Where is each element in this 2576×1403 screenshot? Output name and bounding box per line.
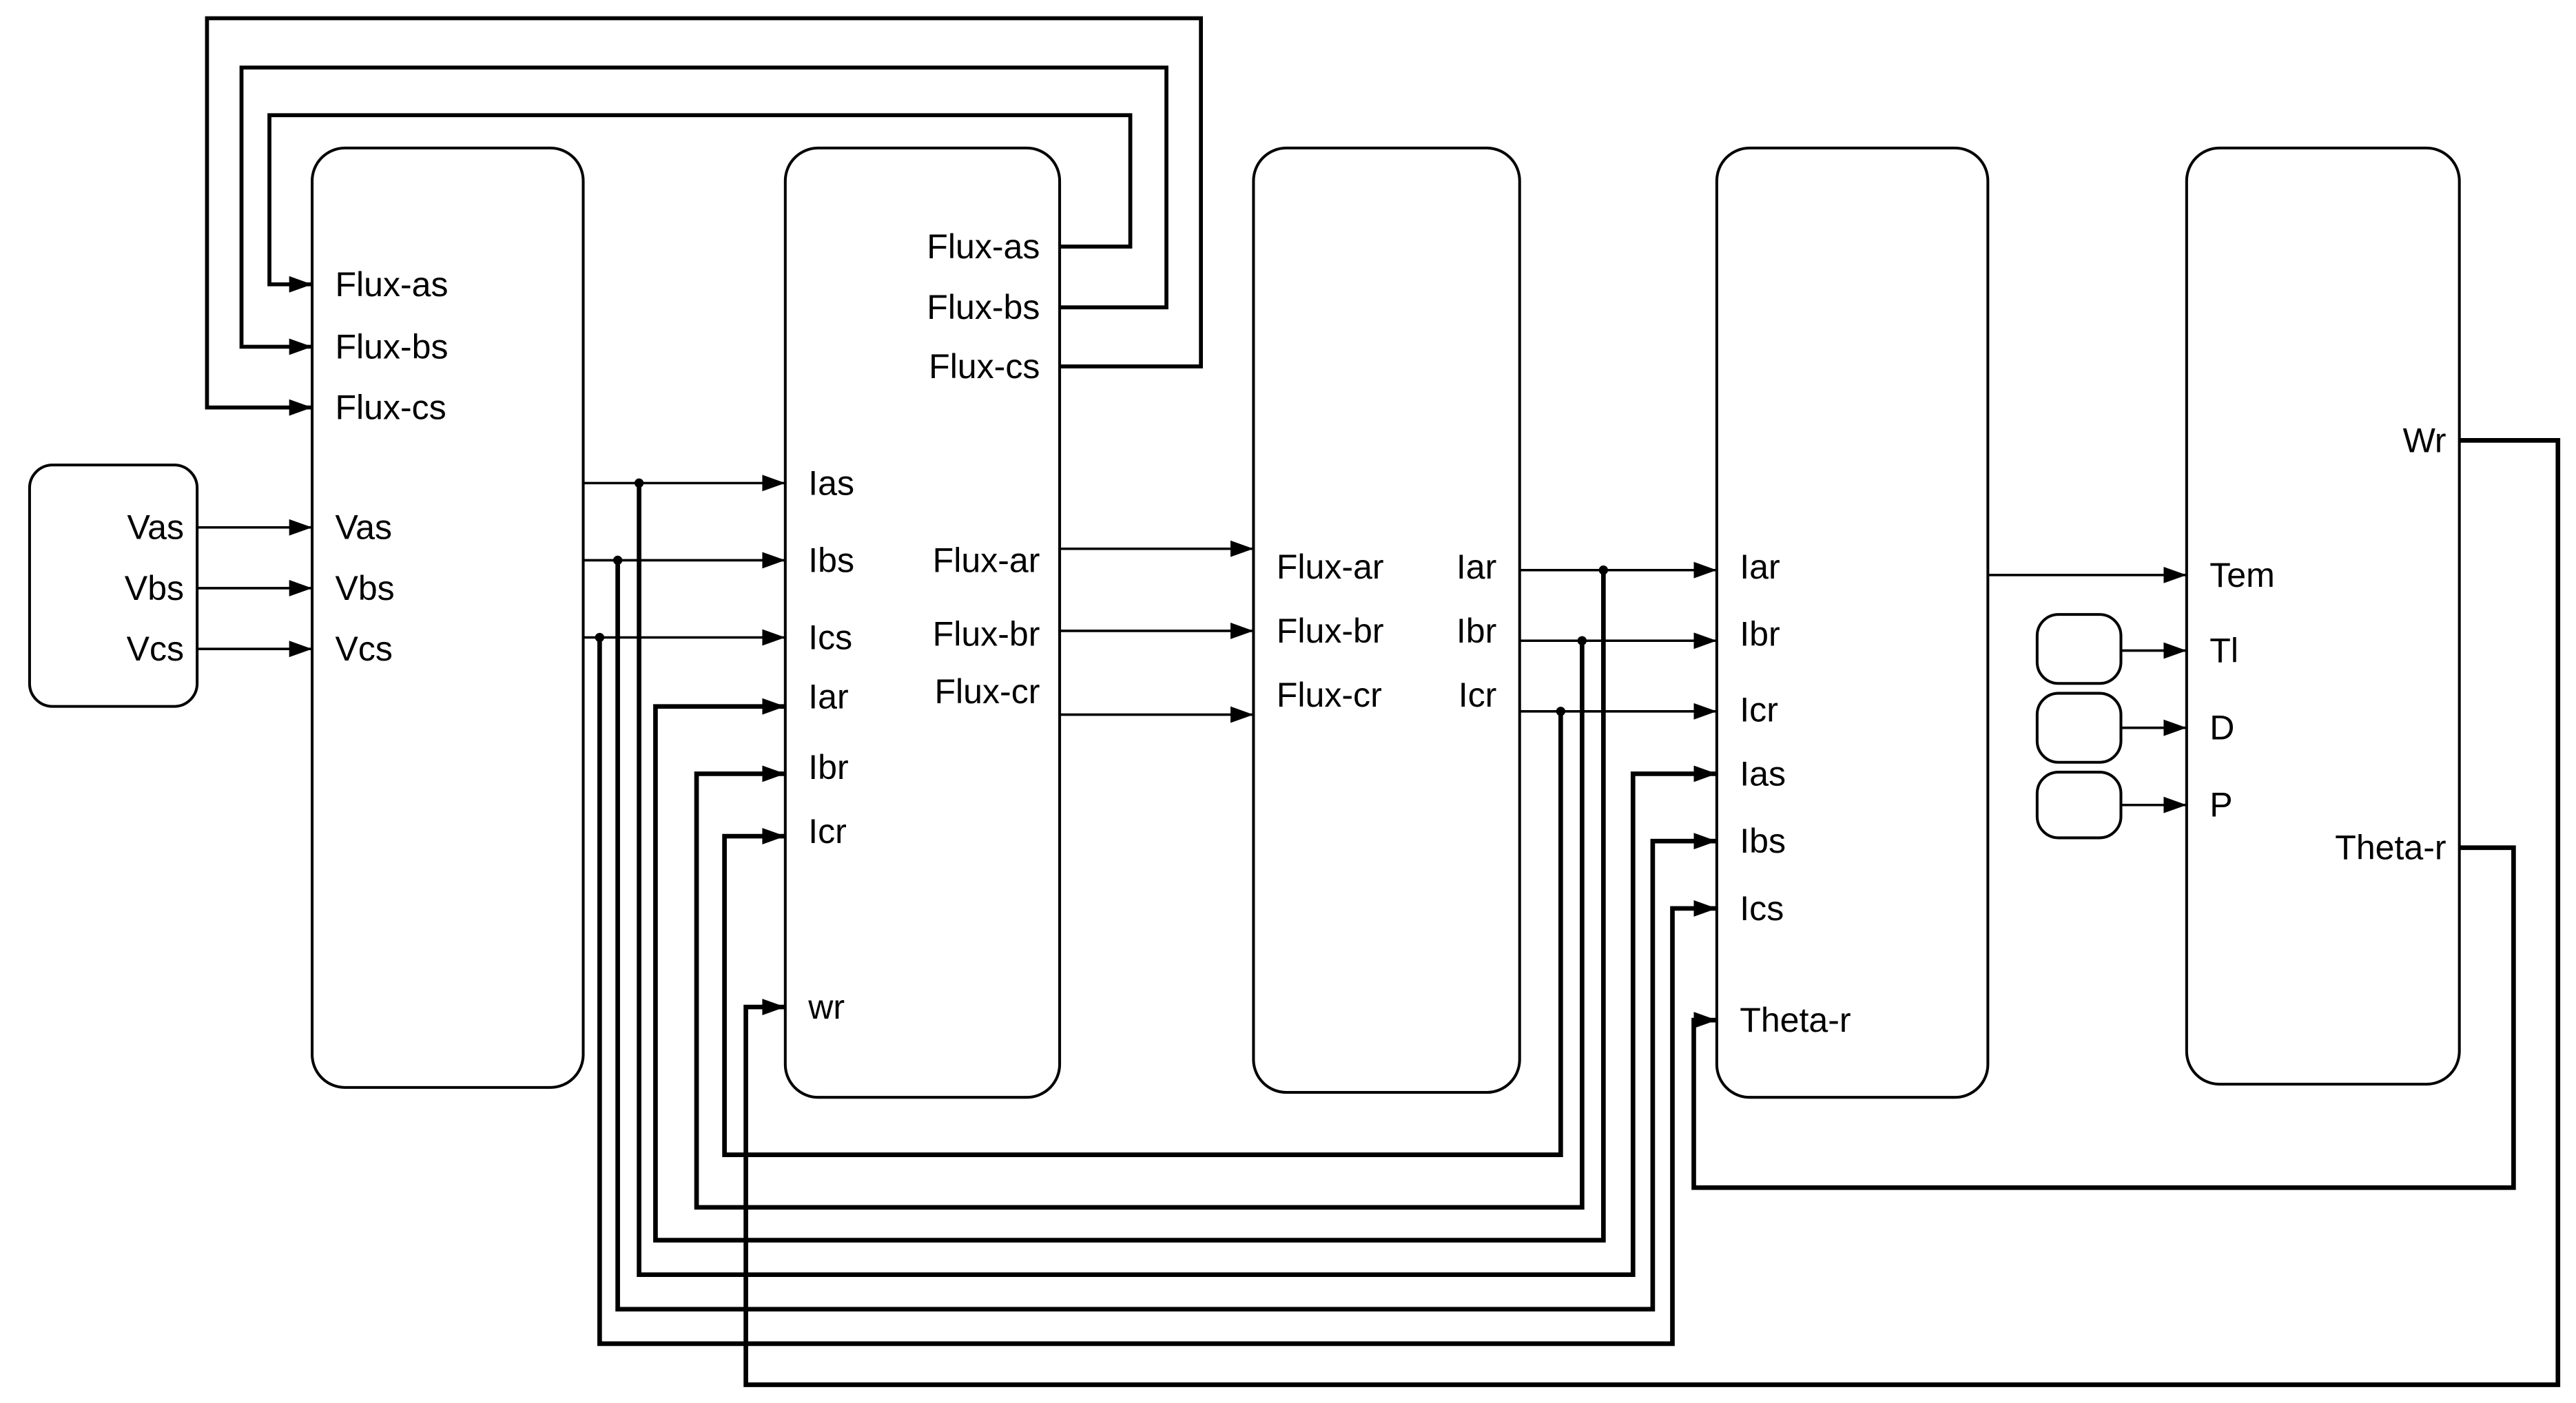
port-label-b5-ics: Ics bbox=[1740, 889, 1784, 928]
port-label-b5-ibs: Ibs bbox=[1740, 822, 1786, 860]
port-label-b2-flux-cs: Flux-cs bbox=[335, 388, 446, 427]
block-constant-p[interactable] bbox=[2037, 772, 2121, 838]
port-label-b5-icr: Icr bbox=[1740, 690, 1778, 729]
port-label-source-vbs: Vbs bbox=[125, 569, 184, 607]
port-label-b3-ics: Ics bbox=[808, 619, 852, 657]
wire-junction-dot bbox=[1578, 636, 1587, 645]
simulink-block-diagram: Vas Vbs Vcs Flux-as Flux-bs Flux-cs Vas … bbox=[0, 0, 2576, 1403]
wire-junction-dot bbox=[595, 633, 604, 642]
wire-junction-dot bbox=[1556, 707, 1565, 716]
port-label-b4-ibr: Ibr bbox=[1456, 612, 1496, 650]
port-label-b2-vbs: Vbs bbox=[335, 569, 394, 607]
diagram-canvas: Vas Vbs Vcs Flux-as Flux-bs Flux-cs Vas … bbox=[0, 0, 2576, 1403]
port-label-b3-ias: Ias bbox=[808, 464, 854, 502]
port-label-b4-flux-br: Flux-br bbox=[1277, 612, 1384, 650]
block-constant-tl[interactable] bbox=[2037, 614, 2121, 683]
wire-junction-dot bbox=[613, 556, 622, 565]
port-label-source-vcs: Vcs bbox=[127, 630, 184, 668]
port-label-b2-flux-as: Flux-as bbox=[335, 265, 448, 304]
port-label-b2-vcs: Vcs bbox=[335, 630, 392, 668]
port-label-b3-flux-bs: Flux-bs bbox=[927, 288, 1040, 326]
port-label-b4-flux-cr: Flux-cr bbox=[1277, 676, 1382, 714]
port-label-b6-d: D bbox=[2209, 709, 2234, 747]
wire-ibs-to-torque-block[interactable] bbox=[618, 560, 1717, 1309]
wire-junction-dot bbox=[635, 479, 643, 488]
port-label-b3-flux-br: Flux-br bbox=[933, 615, 1040, 654]
port-label-b5-ibr: Ibr bbox=[1740, 615, 1780, 654]
port-label-b3-flux-cr: Flux-cr bbox=[934, 672, 1040, 711]
port-label-b6-theta-r: Theta-r bbox=[2335, 829, 2446, 867]
port-label-b3-iar: Iar bbox=[808, 677, 848, 716]
port-label-source-vas: Vas bbox=[127, 508, 185, 547]
port-label-b6-wr: Wr bbox=[2403, 421, 2446, 459]
port-label-b3-wr: wr bbox=[807, 988, 845, 1026]
port-label-b3-ibr: Ibr bbox=[808, 748, 848, 787]
port-label-b6-tl: Tl bbox=[2209, 632, 2238, 670]
block-mechanical-model[interactable] bbox=[2187, 148, 2460, 1084]
port-label-b4-iar: Iar bbox=[1456, 548, 1496, 586]
port-label-b4-flux-ar: Flux-ar bbox=[1277, 548, 1384, 586]
wire-ics-to-torque-block[interactable] bbox=[599, 638, 1717, 1344]
port-label-b5-theta-r: Theta-r bbox=[1740, 1001, 1851, 1039]
port-label-b3-ibs: Ibs bbox=[808, 541, 854, 579]
port-label-b2-vas: Vas bbox=[335, 508, 392, 547]
port-label-b2-flux-bs: Flux-bs bbox=[335, 327, 448, 366]
wire-junction-dot bbox=[1599, 565, 1608, 574]
port-label-b3-icr: Icr bbox=[808, 812, 847, 851]
port-label-b4-icr: Icr bbox=[1459, 676, 1497, 714]
port-label-b6-tem: Tem bbox=[2209, 556, 2275, 594]
port-label-b6-p: P bbox=[2209, 786, 2232, 824]
block-constant-d[interactable] bbox=[2037, 694, 2121, 762]
port-label-b3-flux-cs: Flux-cs bbox=[929, 347, 1040, 386]
port-label-b3-flux-ar: Flux-ar bbox=[933, 541, 1040, 579]
port-label-b5-ias: Ias bbox=[1740, 754, 1786, 793]
port-label-b5-iar: Iar bbox=[1740, 548, 1780, 586]
port-label-b3-flux-as: Flux-as bbox=[927, 227, 1040, 266]
